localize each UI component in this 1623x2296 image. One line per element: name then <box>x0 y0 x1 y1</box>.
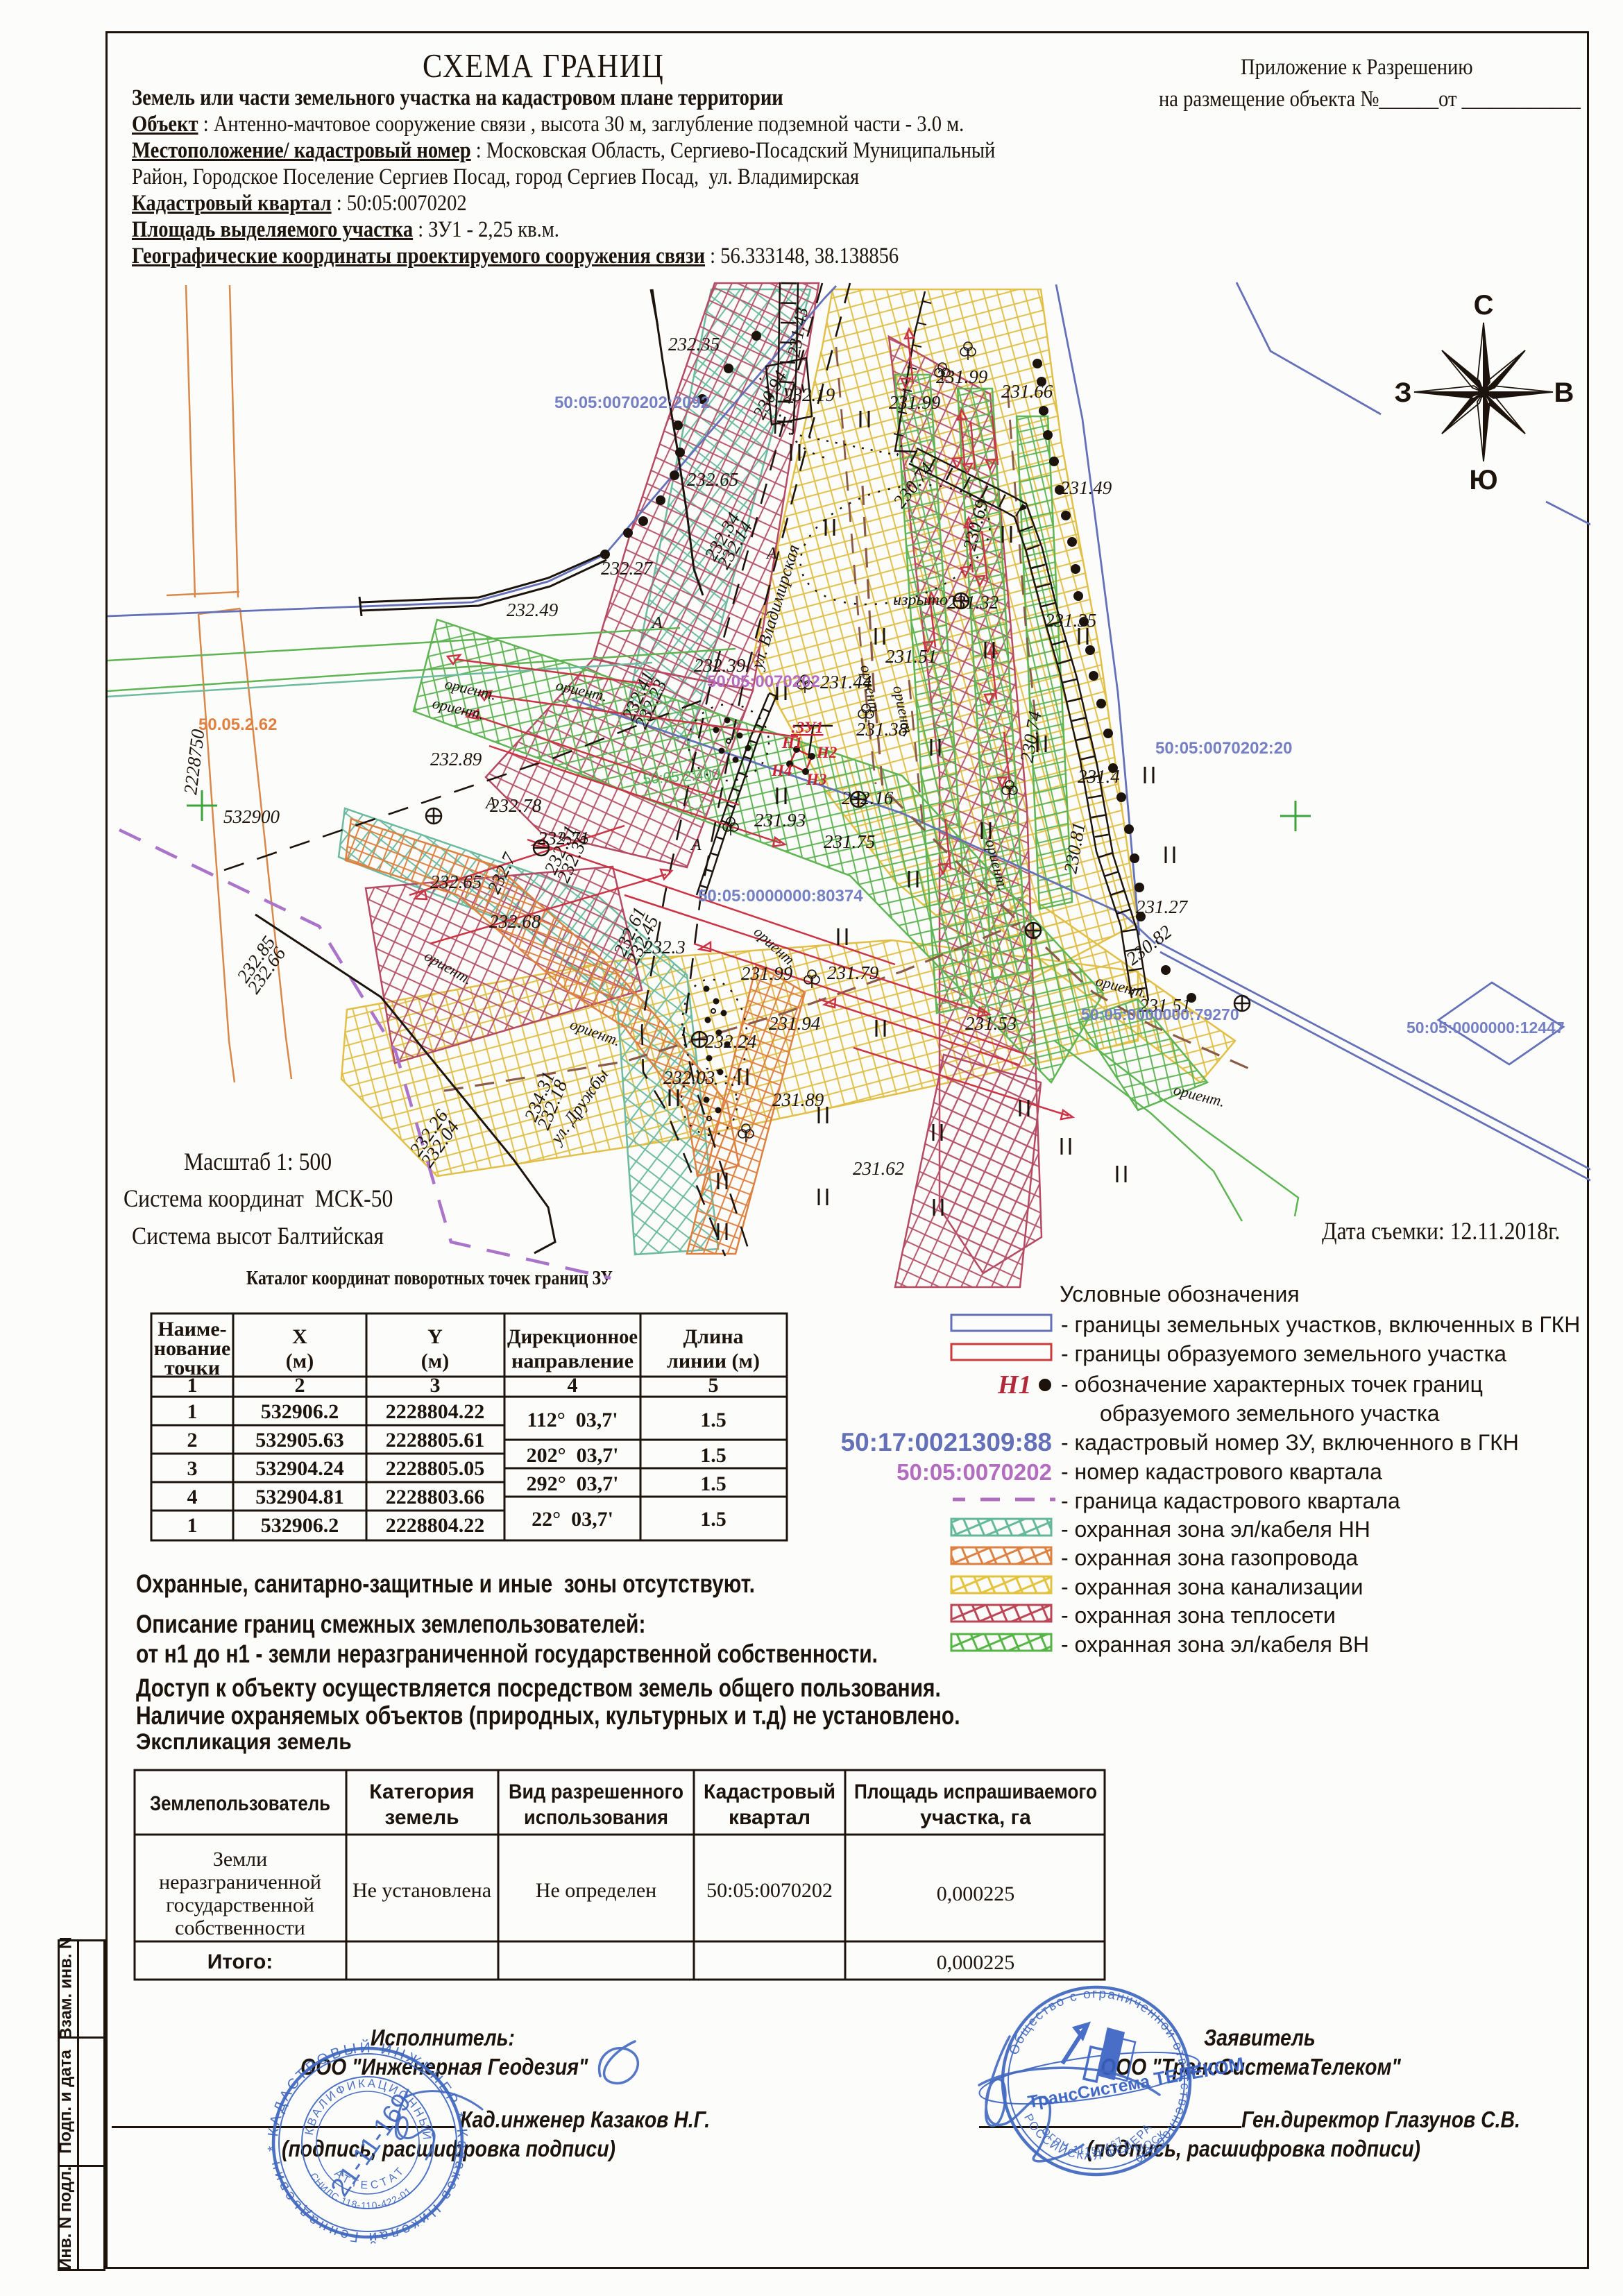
svg-text:участка, га: участка, га <box>920 1806 1031 1829</box>
svg-text:Кадастровый: Кадастровый <box>704 1780 835 1803</box>
svg-text:1.5: 1.5 <box>700 1472 726 1495</box>
svg-text:Н2: Н2 <box>816 744 837 761</box>
svg-text:50:05:0000000:80374: 50:05:0000000:80374 <box>698 887 863 905</box>
svg-text:государственной: государственной <box>166 1894 314 1916</box>
svg-text:532906.2: 532906.2 <box>261 1514 339 1537</box>
svg-text:1.5: 1.5 <box>700 1409 726 1431</box>
svg-text:Н1: Н1 <box>997 1370 1032 1400</box>
svg-text:230.82: 230.82 <box>1122 921 1175 969</box>
svg-text:1: 1 <box>187 1400 198 1423</box>
svg-text:Вид разрешенного: Вид разрешенного <box>509 1780 683 1803</box>
svg-text:Условные обозначения: Условные обозначения <box>1060 1282 1300 1307</box>
svg-text:Категория: Категория <box>369 1780 474 1803</box>
svg-text:2228804.22: 2228804.22 <box>386 1400 485 1423</box>
svg-text:- охранная зона эл/кабеля ВН: - охранная зона эл/кабеля ВН <box>1061 1632 1369 1657</box>
svg-text:А: А <box>484 794 496 813</box>
svg-text:С: С <box>1474 290 1494 321</box>
svg-text:А: А <box>690 836 702 854</box>
svg-text:- границы образуемого земельно: - границы образуемого земельного участка <box>1061 1341 1506 1366</box>
svg-text:532906.2: 532906.2 <box>261 1400 339 1423</box>
svg-text:А: А <box>651 614 663 632</box>
svg-text:231.32: 231.32 <box>947 592 999 613</box>
svg-text:- номер кадастрового квартала: - номер кадастрового квартала <box>1061 1459 1382 1484</box>
svg-text:2228805.05: 2228805.05 <box>386 1457 485 1480</box>
svg-text:231.99: 231.99 <box>936 366 988 387</box>
svg-text:50:17:0021309:88: 50:17:0021309:88 <box>841 1428 1052 1456</box>
svg-text:В: В <box>1554 377 1574 408</box>
svg-text:232.65: 232.65 <box>687 469 738 490</box>
svg-text:образуемого земельного участка: образуемого земельного участка <box>1100 1401 1440 1426</box>
svg-text:231.79: 231.79 <box>827 962 879 983</box>
svg-text:- граница кадастрового квартал: - граница кадастрового квартала <box>1061 1488 1400 1513</box>
svg-text:РОССИЙСКАЯ ФЕДЕРАЦИЯ: РОССИЙСКАЯ ФЕДЕРАЦИЯ <box>208 1971 1155 2163</box>
svg-text:собственности: собственности <box>175 1916 305 1939</box>
svg-text:неразграниченной: неразграниченной <box>159 1871 321 1894</box>
svg-text:532904.81: 532904.81 <box>255 1486 344 1508</box>
svg-text:- охранная зона теплосети: - охранная зона теплосети <box>1061 1603 1336 1628</box>
svg-text:202° 03,7': 202° 03,7' <box>527 1444 619 1467</box>
svg-text:Не определен: Не определен <box>536 1879 656 1902</box>
svg-text:231.49: 231.49 <box>1060 477 1112 498</box>
svg-text:3: 3 <box>430 1374 441 1397</box>
svg-text:X: X <box>292 1325 307 1348</box>
svg-text:112° 03,7': 112° 03,7' <box>527 1409 618 1431</box>
svg-text:Земли: Земли <box>213 1848 267 1871</box>
svg-text:(м): (м) <box>286 1350 314 1372</box>
svg-text:232.16: 232.16 <box>842 788 894 808</box>
svg-text:50:05:0070202: 50:05:0070202 <box>706 1879 833 1902</box>
svg-text:232.03: 232.03 <box>663 1067 715 1088</box>
svg-text:50:05:0070202:2092: 50:05:0070202:2092 <box>554 393 710 412</box>
svg-text:232.24: 232.24 <box>705 1031 756 1052</box>
svg-text:22° 03,7': 22° 03,7' <box>532 1508 613 1531</box>
svg-text:532905.63: 532905.63 <box>255 1429 344 1452</box>
svg-text:232.68: 232.68 <box>489 911 541 932</box>
svg-text:232.49: 232.49 <box>507 599 559 620</box>
svg-text:231.66: 231.66 <box>1001 381 1053 402</box>
svg-text:232.35: 232.35 <box>668 334 720 355</box>
svg-text:532900: 532900 <box>223 806 280 827</box>
svg-text:1: 1 <box>187 1514 198 1537</box>
svg-text:Н3: Н3 <box>806 771 826 788</box>
svg-text:квартал: квартал <box>729 1806 810 1829</box>
svg-text:232.27: 232.27 <box>601 558 654 579</box>
svg-text:0,000225: 0,000225 <box>937 1882 1015 1905</box>
svg-text:50:05:0070202: 50:05:0070202 <box>707 672 820 691</box>
svg-text:2228804.22: 2228804.22 <box>386 1514 485 1537</box>
svg-text:- обозначение характерных точе: - обозначение характерных точек границ <box>1061 1372 1483 1397</box>
svg-text:231.93: 231.93 <box>754 810 806 831</box>
svg-text:Дирекционное: Дирекционное <box>507 1325 638 1348</box>
svg-text:50.05.2.62: 50.05.2.62 <box>198 715 277 734</box>
svg-text:50:05:0070202: 50:05:0070202 <box>897 1459 1052 1485</box>
svg-text:232.19: 232.19 <box>783 384 835 405</box>
svg-text:231.35: 231.35 <box>1045 610 1096 631</box>
svg-text:231.51: 231.51 <box>885 646 937 667</box>
svg-text:231.4: 231.4 <box>1078 766 1120 787</box>
svg-text:292° 03,7': 292° 03,7' <box>527 1472 619 1495</box>
svg-text:231.94: 231.94 <box>769 1013 820 1034</box>
svg-text:1: 1 <box>187 1374 198 1397</box>
svg-text:231.53: 231.53 <box>965 1013 1017 1034</box>
svg-text:2228805.61: 2228805.61 <box>386 1429 485 1452</box>
svg-text:Площадь испрашиваемого: Площадь испрашиваемого <box>854 1780 1097 1803</box>
svg-text:земель: земель <box>384 1806 459 1829</box>
svg-text:232.89: 232.89 <box>430 749 482 769</box>
svg-text:использования: использования <box>524 1806 668 1829</box>
svg-text:Длина: Длина <box>683 1325 743 1348</box>
svg-text:231.27: 231.27 <box>1136 896 1189 917</box>
svg-text:1.5: 1.5 <box>700 1508 726 1531</box>
svg-text:3: 3 <box>187 1457 198 1480</box>
svg-text:4: 4 <box>187 1486 198 1508</box>
svg-text:231.62: 231.62 <box>853 1158 904 1179</box>
svg-text:231.99: 231.99 <box>889 392 941 413</box>
svg-text:- охранная зона канализации: - охранная зона канализации <box>1061 1574 1363 1599</box>
svg-text:Землепользователь: Землепользователь <box>150 1792 330 1815</box>
svg-text:ОГРН 1115046710730: ОГРН 1115046710730 <box>208 1971 1126 2157</box>
svg-text:232.65: 232.65 <box>430 871 482 892</box>
svg-text:- охранная зона эл/кабеля НН: - охранная зона эл/кабеля НН <box>1061 1517 1370 1542</box>
svg-text:- охранная зона газопровода: - охранная зона газопровода <box>1061 1545 1358 1570</box>
svg-text:(м): (м) <box>421 1350 449 1372</box>
svg-text:- границы земельных участков,: - границы земельных участков, включенных… <box>1061 1312 1580 1337</box>
svg-text:50:05:0000000:12447: 50:05:0000000:12447 <box>1407 1019 1565 1037</box>
svg-text:А: А <box>765 545 777 563</box>
svg-text:Не установлена: Не установлена <box>352 1879 491 1902</box>
svg-text:50:05:0070202:20: 50:05:0070202:20 <box>1155 739 1293 758</box>
svg-text:532904.24: 532904.24 <box>255 1457 344 1480</box>
svg-text:Н4: Н4 <box>771 762 792 779</box>
svg-text:231.89: 231.89 <box>772 1089 824 1110</box>
svg-text:232.78: 232.78 <box>490 795 542 816</box>
svg-text:50:05:0000000:79270: 50:05:0000000:79270 <box>1081 1005 1239 1023</box>
svg-text:Y: Y <box>427 1325 443 1348</box>
svg-text:231.75: 231.75 <box>824 831 875 852</box>
svg-text:линии (м): линии (м) <box>667 1350 760 1372</box>
svg-text:направление: направление <box>511 1350 634 1372</box>
svg-text:Н1: Н1 <box>781 734 802 751</box>
svg-text:2: 2 <box>187 1429 198 1452</box>
svg-text:- кадастровый номер ЗУ, включе: - кадастровый номер ЗУ, включенного в ГК… <box>1061 1430 1519 1455</box>
svg-text:1.5: 1.5 <box>700 1444 726 1467</box>
svg-text:Ю: Ю <box>1469 465 1497 495</box>
svg-text:З: З <box>1394 377 1411 408</box>
svg-text:изрыто: изрыто <box>893 591 948 609</box>
svg-text:4: 4 <box>568 1374 578 1397</box>
svg-text:2: 2 <box>295 1374 305 1397</box>
svg-text:г. МОСКВА: г. МОСКВА <box>208 1971 1169 2157</box>
svg-text:2228750: 2228750 <box>180 728 208 796</box>
svg-text:5: 5 <box>708 1374 719 1397</box>
svg-text:2228803.66: 2228803.66 <box>386 1486 485 1508</box>
